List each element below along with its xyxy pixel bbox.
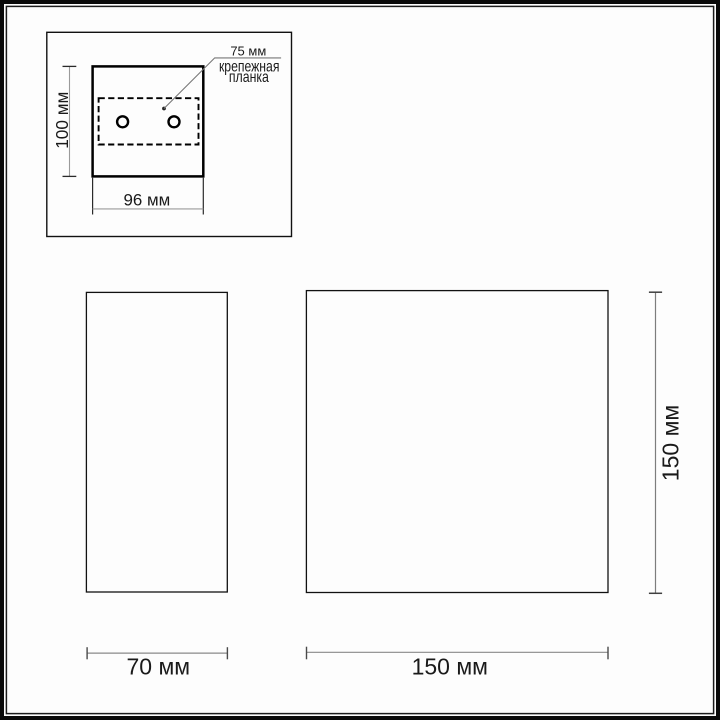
svg-text:96 мм: 96 мм — [124, 190, 171, 209]
svg-text:150 мм: 150 мм — [412, 653, 488, 679]
svg-text:планка: планка — [229, 69, 269, 86]
svg-text:75 мм: 75 мм — [230, 43, 266, 58]
svg-text:70 мм: 70 мм — [126, 653, 190, 679]
svg-text:150 мм: 150 мм — [657, 405, 683, 481]
svg-text:100 мм: 100 мм — [52, 92, 72, 149]
